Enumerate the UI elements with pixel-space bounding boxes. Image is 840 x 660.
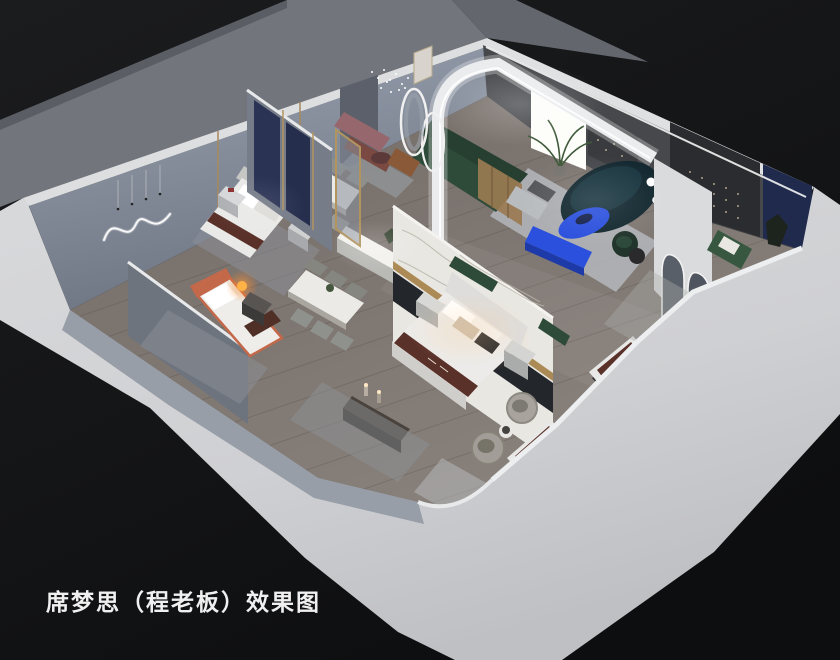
- bed2-headboard: [445, 272, 528, 346]
- bed1-mattress: [200, 178, 292, 258]
- glow-table-lamp: [226, 270, 258, 302]
- showroom-render: [0, 0, 840, 660]
- dark-display-panel: [588, 114, 638, 180]
- exterior-terrace: [0, 0, 648, 207]
- front-left-inner-face: [62, 310, 424, 524]
- marble-mirror-strip: [393, 271, 553, 413]
- wall-plant-silhouette: [766, 214, 788, 247]
- bottom-console: [343, 383, 586, 453]
- render-canvas: 席梦思（程老板）效果图: [0, 0, 840, 660]
- mirror-niche-wall: [654, 158, 712, 350]
- lit-console: [337, 226, 414, 290]
- barrel-chair-2: [472, 432, 504, 464]
- gold-glass-partition: [336, 130, 360, 246]
- green-sofa-seat: [412, 136, 516, 212]
- squiggle-neon-light: [104, 214, 170, 240]
- partition-single-room: [128, 262, 248, 424]
- bed3-mattress: [198, 278, 282, 356]
- mattress-display-2: [507, 420, 582, 492]
- bedroom-1: [192, 166, 320, 296]
- navy-wall-panel: [763, 164, 812, 253]
- green-bench-behind: [449, 256, 498, 292]
- light-glows: [210, 62, 670, 366]
- side-table: [499, 424, 513, 438]
- floor-planks: [40, 54, 840, 572]
- gray-pouf: [506, 186, 548, 220]
- barrel-chair-1: [507, 393, 537, 423]
- bed3-runner: [244, 310, 281, 337]
- warm-underlight: [408, 306, 532, 374]
- bed1-runner: [207, 212, 264, 250]
- dining1-table: [288, 270, 364, 324]
- lounge-vignette: [334, 112, 420, 198]
- bed2-nightstand-left: [416, 292, 446, 328]
- bed2-runner: [394, 332, 478, 397]
- redbrown-cabinet: [344, 136, 392, 172]
- dark-background: [0, 0, 840, 660]
- mauve-bench: [334, 112, 390, 152]
- table-plant: [326, 284, 334, 292]
- runner-logo: [428, 358, 448, 372]
- crystal-pendant: [371, 69, 409, 93]
- dining2-table: [306, 168, 360, 210]
- console-plant: [384, 228, 397, 244]
- back-right-wall: [483, 38, 814, 253]
- navy-fabric-partition: [247, 90, 332, 252]
- blue-tv-bench: [525, 226, 592, 268]
- marble-veins: [398, 230, 544, 306]
- led-strip: [486, 47, 806, 197]
- bed1-nightstand: [218, 186, 246, 218]
- living-room-rug: [490, 168, 658, 292]
- partition-walls: [128, 90, 360, 424]
- pendant-wires: [117, 165, 162, 210]
- arch-led-wall: [438, 64, 712, 350]
- bed2-pillows: [442, 300, 502, 354]
- caption-text: 席梦思（程老板）效果图: [46, 583, 321, 617]
- wall-artwork: [414, 46, 432, 84]
- globe-floor-lamp: [647, 178, 669, 219]
- band-inner-lip: [492, 248, 802, 480]
- dining-set-6: [288, 258, 368, 351]
- marble-room: [392, 206, 570, 462]
- charcoal-feature-wall: [670, 122, 760, 237]
- right-room: [604, 230, 752, 382]
- bed2-mattress: [392, 292, 520, 396]
- bed3-nightstand: [242, 292, 272, 326]
- lounge-rug: [340, 148, 414, 198]
- dining2-chair: [304, 202, 328, 222]
- bed3-rug: [140, 310, 268, 404]
- bed1-nightstand-2: [288, 218, 316, 252]
- marble-gold-band: [393, 261, 553, 381]
- plant-palm: [528, 120, 592, 176]
- bottom-rug-2: [414, 458, 520, 536]
- single-bed-room: [140, 268, 282, 404]
- swivel-dark-chair: [612, 231, 638, 257]
- bed2-nightstand-right: [504, 340, 536, 380]
- arch-mirror-1: [662, 255, 684, 330]
- cognac-armchair: [387, 148, 420, 177]
- bed1-headboard: [236, 166, 296, 208]
- bottom-rug-1: [290, 382, 430, 482]
- right-room-rug: [604, 270, 752, 382]
- oval-mirrors: [401, 89, 444, 171]
- marble-partition: [393, 206, 553, 462]
- wood-floor: [40, 54, 840, 572]
- armchair-pillow: [718, 236, 740, 255]
- green-armchair: [707, 230, 752, 269]
- back-left-wall: [23, 38, 492, 310]
- bed3-headboard: [190, 268, 233, 298]
- wood-screen: [478, 158, 522, 226]
- round-coffee-table: [371, 152, 391, 164]
- dark-cushion: [527, 180, 556, 202]
- blue-coffee-table: [554, 201, 614, 245]
- bedroom1-rug: [192, 196, 320, 296]
- string-lights: [597, 139, 739, 219]
- green-sofa-back: [420, 120, 528, 190]
- swivel-chairs: [472, 393, 537, 464]
- dining-set-4: [304, 69, 409, 234]
- arch-mirror-2: [688, 273, 710, 348]
- teal-curved-sofa: [549, 147, 670, 248]
- living-room: [412, 120, 671, 292]
- dark-stool: [629, 248, 645, 264]
- backlit-white-panel: [531, 88, 586, 170]
- wall-doorway: [340, 75, 378, 171]
- mattress-display-1: [589, 336, 660, 404]
